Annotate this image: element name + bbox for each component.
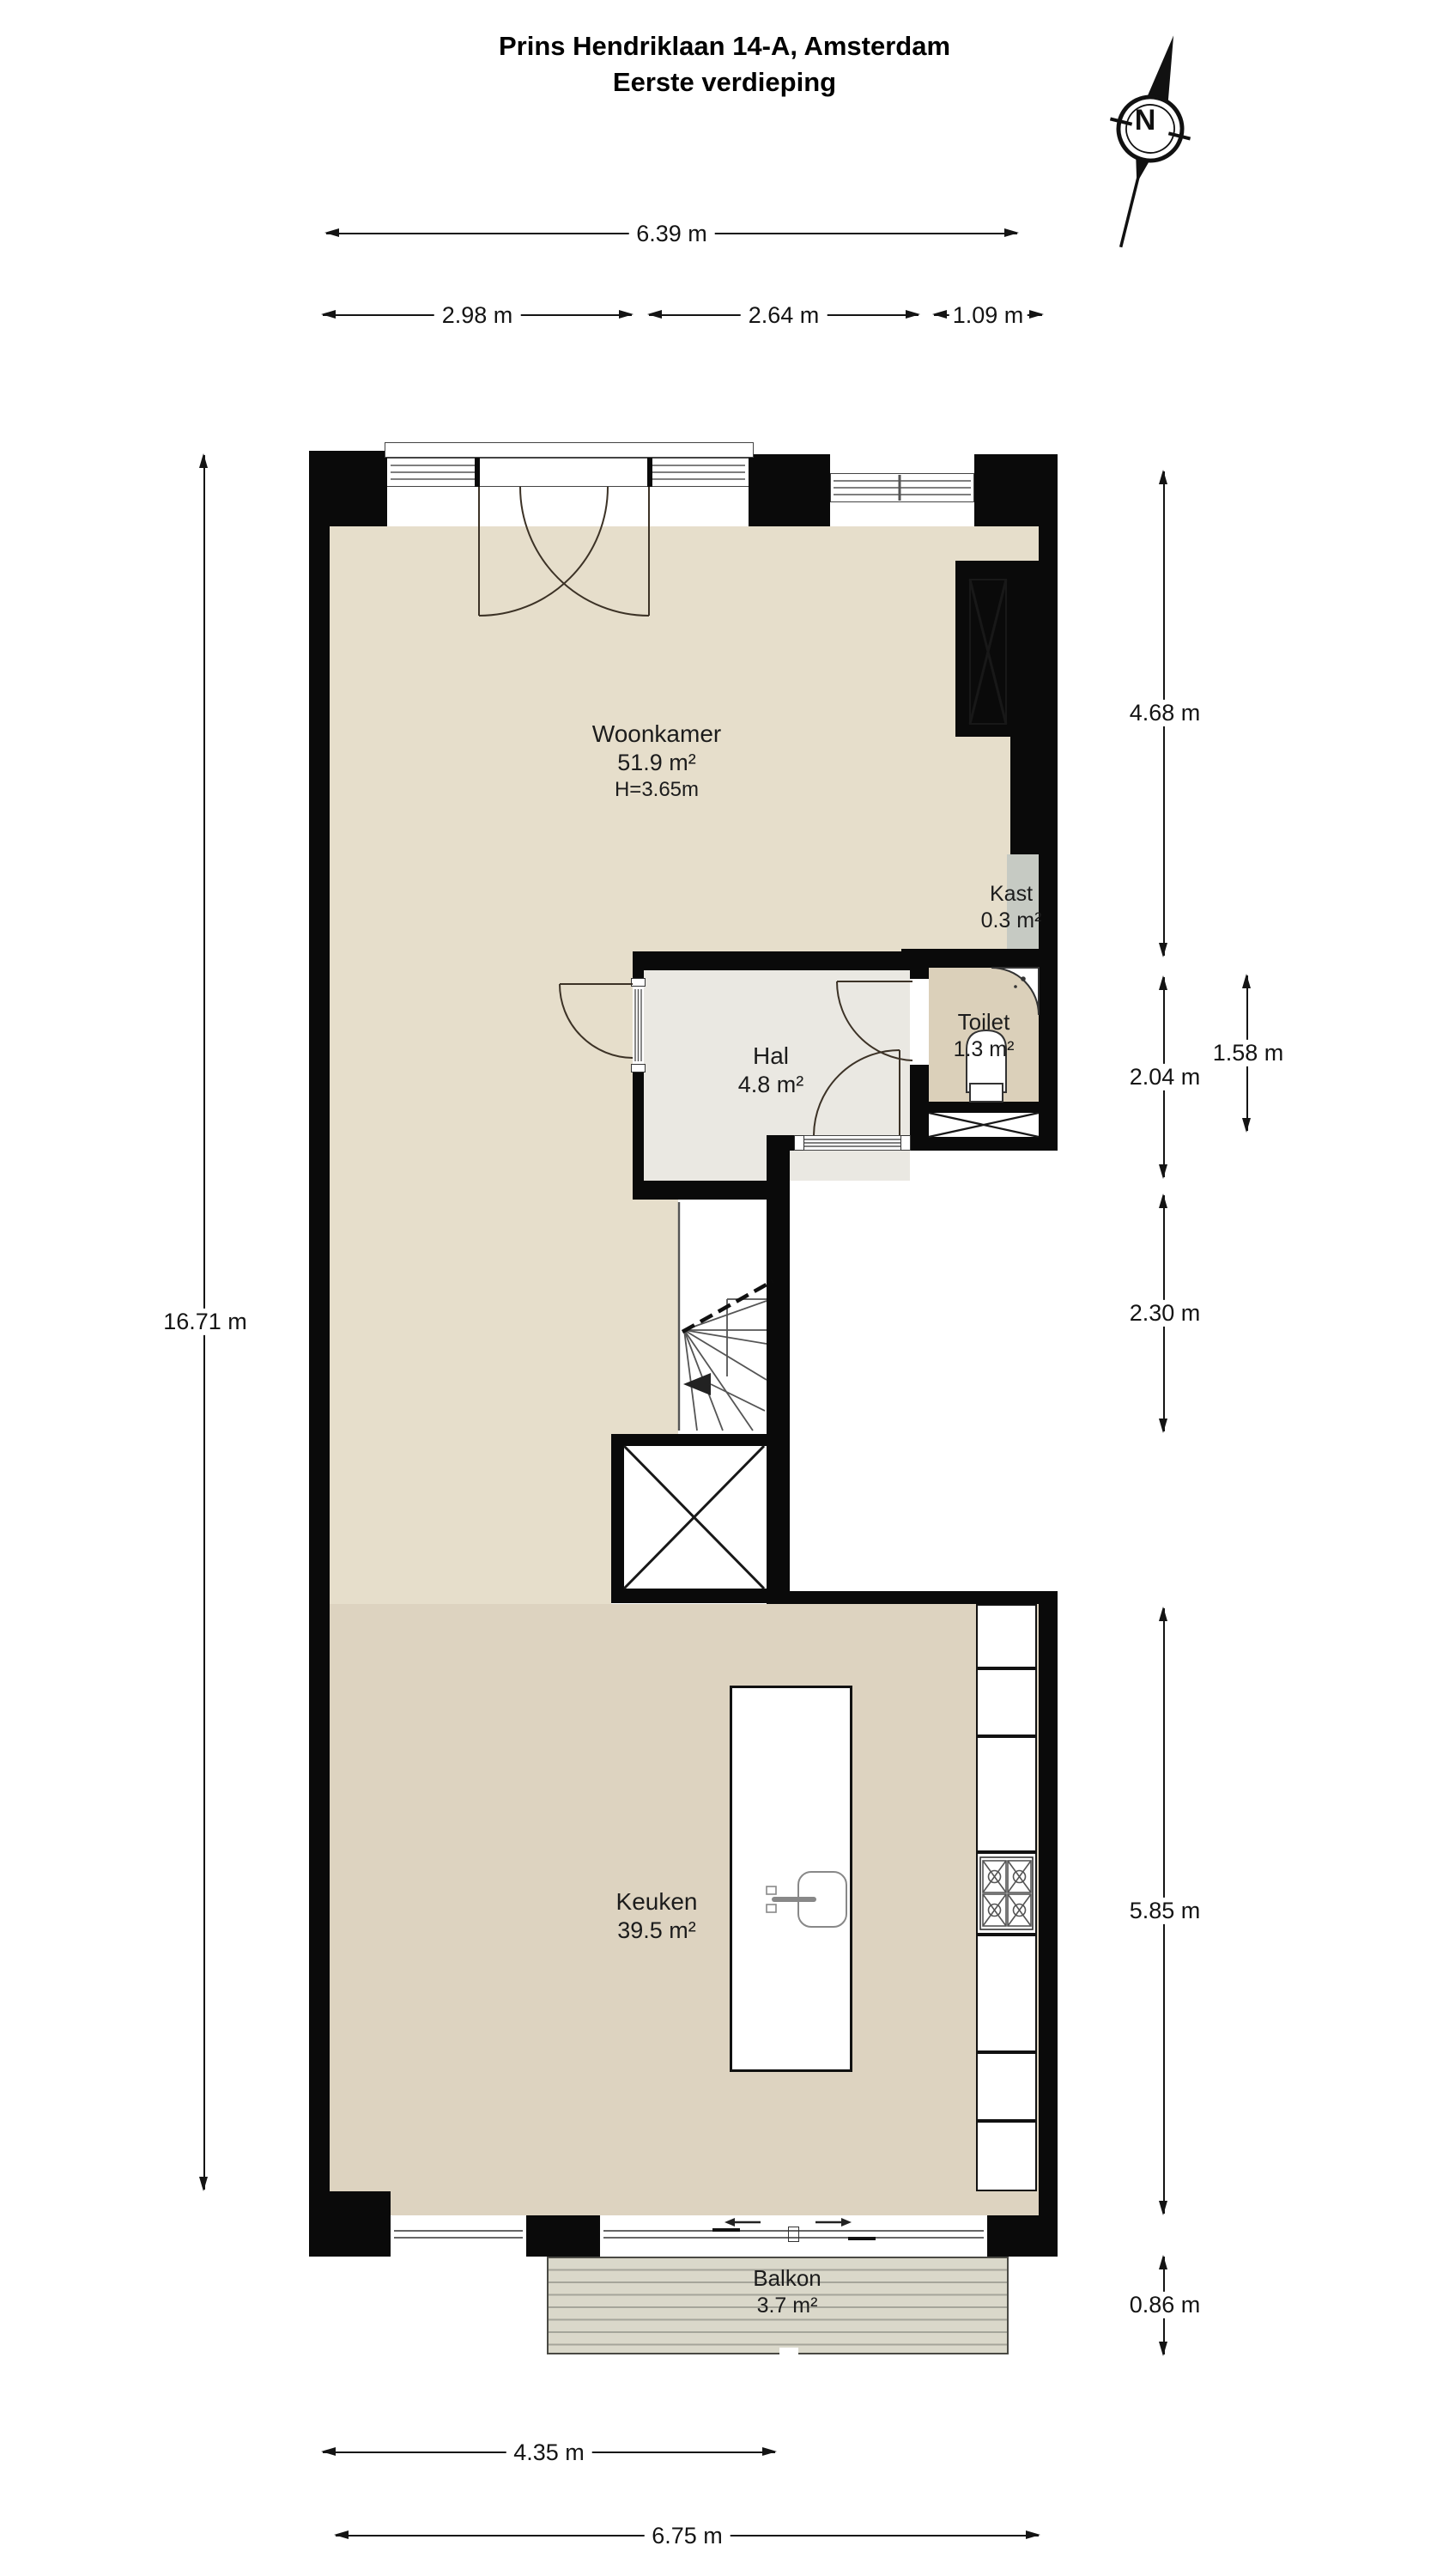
dim-right-balkon-label: 0.86 m [1126, 2292, 1204, 2318]
label-woonkamer: Woonkamer 51.9 m² H=3.65m [549, 720, 764, 802]
dim-top-right: 1.09 m [934, 314, 1042, 316]
dim-top-right-label: 1.09 m [949, 302, 1028, 329]
dim-right-stairs: 2.30 m [1163, 1195, 1165, 1431]
wall-right-kitchen [1039, 1591, 1058, 2257]
wall-bottom-right-block [987, 2215, 1058, 2257]
wall-bottom-mid-block [526, 2215, 600, 2257]
wall-stairs-right [767, 1148, 790, 1604]
floor-woonkamer-left-strip [330, 951, 678, 1434]
label-kast: Kast 0.3 m² [947, 881, 1076, 933]
glass-door-cap-bottom [631, 1064, 646, 1072]
dim-right-stairs-label: 2.30 m [1122, 1299, 1209, 1326]
kitchen-island [730, 1686, 852, 2072]
wall-toilet-left-a [910, 968, 929, 979]
window-hal-south [801, 1135, 904, 1151]
dim-top-total: 6.39 m [326, 233, 1017, 234]
wall-flue-block [955, 561, 1058, 737]
dim-bottom-total: 6.75 m [336, 2535, 1039, 2537]
dim-right-livingroom: 4.68 m [1163, 471, 1165, 956]
balkon-fence-gap [779, 2348, 798, 2356]
wall-hal-top [633, 951, 916, 970]
plan-title-line1: Prins Hendriklaan 14-A, Amsterdam [0, 31, 1449, 62]
label-toilet: Toilet 1.3 m² [919, 1009, 1048, 1062]
window-post-right [647, 458, 652, 487]
dim-bottom-inner: 4.35 m [323, 2451, 775, 2453]
wall-toilet-top [901, 949, 1058, 968]
wall-pier-top-left [309, 451, 387, 526]
dim-right-livingroom-label: 4.68 m [1122, 700, 1209, 726]
window-band-top-left [387, 458, 749, 487]
plan-title-line2: Eerste verdieping [0, 67, 1449, 98]
label-toilet-area: 1.3 m² [919, 1036, 1048, 1063]
french-balcony-threshold [385, 442, 754, 458]
dim-bottom-total-label: 6.75 m [644, 2523, 731, 2549]
sliding-door-center-break [788, 2227, 799, 2242]
wall-stairs-bottom [611, 1434, 767, 1446]
label-keuken-name: Keuken [549, 1887, 764, 1917]
wall-bottom-left-block [309, 2191, 391, 2257]
glass-door-hal-strip [633, 986, 644, 1065]
label-hal: Hal 4.8 m² [685, 1042, 857, 1099]
shaft-under-stairs [624, 1446, 764, 1589]
dim-right-toilet-label: 1.58 m [1205, 1039, 1292, 1066]
window-hal-south-cap-right [900, 1135, 911, 1151]
shaft-under-toilet [929, 1113, 1039, 1137]
label-hal-name: Hal [685, 1042, 857, 1071]
floorplan-page: Prins Hendriklaan 14-A, Amsterdam Eerste… [0, 0, 1449, 2576]
floor-passage [330, 1434, 611, 1604]
label-woonkamer-name: Woonkamer [549, 720, 764, 749]
label-hal-area: 4.8 m² [685, 1071, 857, 1099]
dim-right-hal-label: 2.04 m [1122, 1063, 1209, 1090]
glass-door-cap-top [631, 978, 646, 987]
stairwell [681, 1200, 767, 1434]
label-woonkamer-height: H=3.65m [549, 777, 764, 802]
label-keuken-area: 39.5 m² [549, 1917, 764, 1945]
wall-left [309, 451, 330, 2257]
wall-toilet-shaft-bottom [910, 1137, 1058, 1151]
kitchen-stove-box [976, 1852, 1037, 1935]
window-band-top-right [830, 473, 974, 502]
dim-left-total: 16.71 m [203, 455, 205, 2190]
compass-north-icon: N [1056, 26, 1245, 283]
label-balkon-name: Balkon [680, 2265, 894, 2293]
dim-top-mid: 2.64 m [649, 314, 919, 316]
wall-pier-top-middle [749, 454, 830, 526]
dim-right-kitchen-label: 5.85 m [1122, 1897, 1209, 1923]
dim-left-total-label: 16.71 m [155, 1309, 255, 1335]
wall-shaft-left [611, 1446, 624, 1603]
label-kast-area: 0.3 m² [947, 908, 1076, 934]
label-balkon: Balkon 3.7 m² [680, 2265, 894, 2318]
dim-right-toilet: 1.58 m [1246, 975, 1248, 1131]
label-woonkamer-area: 51.9 m² [549, 749, 764, 777]
dim-right-hal: 2.04 m [1163, 977, 1165, 1177]
window-bottom-left [391, 2215, 526, 2257]
dim-right-kitchen: 5.85 m [1163, 1608, 1165, 2214]
wall-pier-right-mid [1010, 737, 1058, 854]
window-hal-south-cap-left [794, 1135, 804, 1151]
label-keuken: Keuken 39.5 m² [549, 1887, 764, 1945]
kitchen-cabinet-6 [976, 2121, 1037, 2191]
kitchen-cabinet-5 [976, 2052, 1037, 2121]
wall-hal-left-b [633, 1065, 644, 1181]
dim-top-total-label: 6.39 m [628, 221, 715, 247]
wall-shaft-bottom [611, 1589, 790, 1603]
wall-hal-bottom [633, 1181, 777, 1200]
dim-top-left: 2.98 m [323, 314, 632, 316]
wall-toilet-bottom [929, 1102, 1058, 1113]
dim-bottom-inner-label: 4.35 m [506, 2439, 592, 2466]
dim-top-left-label: 2.98 m [434, 302, 521, 329]
kitchen-cabinet-1 [976, 1604, 1037, 1668]
label-balkon-area: 3.7 m² [680, 2293, 894, 2319]
dim-right-balkon: 0.86 m [1163, 2257, 1165, 2354]
label-toilet-name: Toilet [919, 1009, 1048, 1036]
window-post-left [475, 458, 480, 487]
kitchen-cabinet-4 [976, 1935, 1037, 2052]
kitchen-cabinet-2 [976, 1668, 1037, 1736]
label-kast-name: Kast [947, 881, 1076, 908]
kitchen-cabinet-3 [976, 1736, 1037, 1852]
compass-label: N [1135, 104, 1156, 137]
wall-kitchen-top [767, 1591, 1058, 1604]
dim-top-mid-label: 2.64 m [741, 302, 828, 329]
